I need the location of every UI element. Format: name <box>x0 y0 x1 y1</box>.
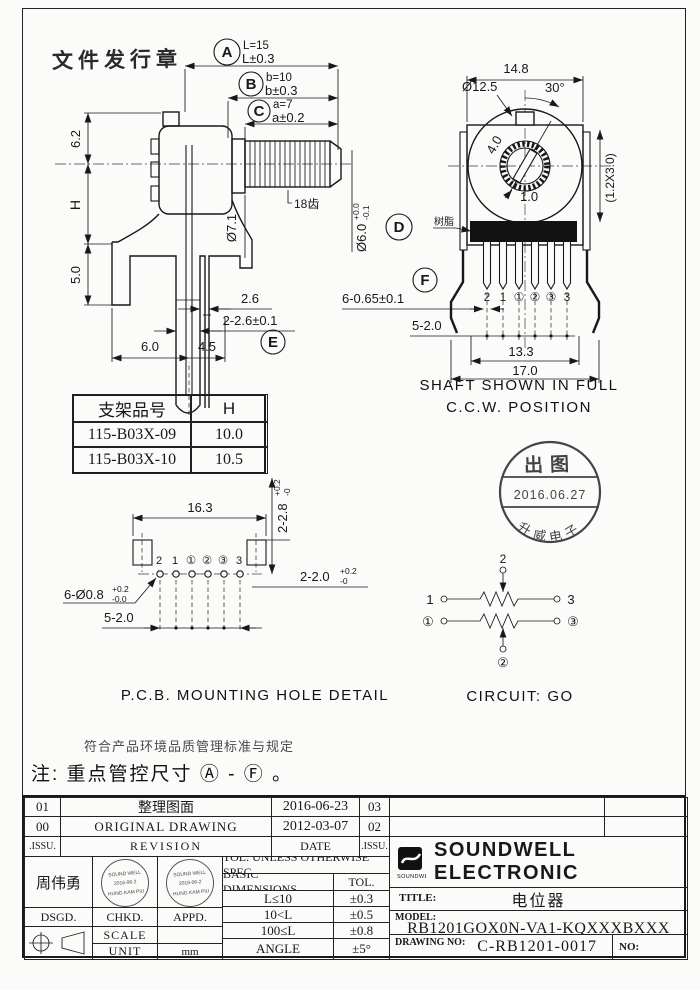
drawing-no-value: C-RB1201-0017 <box>477 938 597 956</box>
bracket-col-part: 支架品号 <box>72 394 192 423</box>
callout-F: F <box>420 272 429 289</box>
designer-name: 周伟勇 <box>24 856 93 908</box>
dim-30deg: 30° <box>545 80 565 95</box>
svg-text:2-2.8: 2-2.8 <box>275 503 290 533</box>
rev-h-date: DATE <box>271 836 360 857</box>
pcb-caption: P.C.B. MOUNTING HOLE DETAIL <box>100 687 410 704</box>
tol-val-3: ±0.8 <box>333 922 390 939</box>
dim-2-6: 2.6 <box>241 291 259 306</box>
svg-text:-0.1: -0.1 <box>361 205 371 220</box>
title-block: 01 整理图面 2016-06-23 03 00 ORIGINAL DRAWIN… <box>22 795 686 958</box>
note-key-dimensions: 注: 重点管控尺寸 Ⓐ - Ⓕ 。 <box>31 759 293 786</box>
terminal-2-label: 2 <box>500 552 507 566</box>
tol-col-tol: TOL. <box>333 873 390 891</box>
rev-empty-4 <box>604 816 688 837</box>
rev-issu-2: 00 <box>24 816 61 837</box>
svg-text:+0.2: +0.2 <box>272 479 282 496</box>
svg-text:SOUNDWELL: SOUNDWELL <box>397 874 426 879</box>
drawing-sheet: 文件发行章 <box>0 0 700 990</box>
bracket-h-1: 10.0 <box>190 421 268 448</box>
terminal-1-label: 1 <box>426 592 433 607</box>
dim-H: H <box>67 200 83 210</box>
dim-C-tol: a±0.2 <box>272 110 304 125</box>
pin-label: 1 <box>500 292 506 304</box>
dim-14-8: 14.8 <box>503 61 528 76</box>
callout-B: B <box>246 76 257 93</box>
dim-hole-dia: 6-Ø0.8 <box>64 587 104 602</box>
dim-5-0: 5.0 <box>68 266 83 284</box>
title-value: 电位器 <box>511 887 565 911</box>
dim-6-2: 6.2 <box>68 130 83 148</box>
circuit-caption: CIRCUIT: GO <box>440 688 600 705</box>
model-value: RB1201GOX0N-VA1-KQXXXBXXX <box>390 920 687 935</box>
pin-label: 3 <box>564 292 570 304</box>
front-view: 30° Ø12.5 14.8 4.0 1.0 (1.2X3.0) 树脂 <box>342 61 617 383</box>
chkd-label: CHKD. <box>92 907 158 927</box>
tol-range-1: L≤10 <box>222 890 334 907</box>
tol-header: TOL. UNLESS OTHERWISE SPEC. <box>222 856 390 874</box>
dim-B-tol: b±0.3 <box>265 83 297 98</box>
third-angle-projection-icon <box>28 929 90 957</box>
pin-label: ② <box>530 290 541 304</box>
dsgd-label: DSGD. <box>24 907 93 927</box>
stamp-bottom-text: 升威电子 <box>515 519 585 545</box>
dim-4-5: 4.5 <box>198 339 216 354</box>
svg-text:-0: -0 <box>282 488 292 496</box>
rev-date-1: 2016-06-23 <box>271 797 360 817</box>
callout-A: A <box>222 44 233 61</box>
bracket-h-2: 10.5 <box>190 446 268 474</box>
tol-col-dims: BASIC DIMENSIONS <box>222 873 334 891</box>
soundwell-logo: SOUNDWELL <box>396 845 426 879</box>
pcb-holes <box>157 571 243 631</box>
drawing-no-label: DRAWING NO: <box>390 935 465 948</box>
terminal-2c-label: ② <box>497 655 509 670</box>
scale-value <box>157 926 223 944</box>
rev-empty-3 <box>389 816 605 837</box>
company-name: SOUNDWELL ELECTRONIC <box>434 839 687 885</box>
terminal-1c-label: ① <box>422 614 434 629</box>
tol-range-4: ANGLE <box>222 938 334 960</box>
drawing-no-row: DRAWING NO: C-RB1201-0017 <box>389 934 613 960</box>
dim-dia-7-1: Ø7.1 <box>224 214 239 242</box>
hole-label: 1 <box>172 555 178 567</box>
front-pins <box>484 242 571 340</box>
stamp-date: 2016.06.27 <box>514 488 587 502</box>
dim-1-0: 1.0 <box>520 189 538 204</box>
circuit-diagram: 2 1 3 ① ③ ② <box>422 552 579 670</box>
dim-6-0-65: 6-0.65±0.1 <box>342 291 404 306</box>
hole-label: ② <box>202 555 212 567</box>
pin-label: ① <box>514 290 525 304</box>
svg-text:+0.2: +0.2 <box>112 584 129 594</box>
side-view: 6.2 H 5.0 2.6 2-2.6±0.1 6.0 4.5 E Ø7.1 <box>55 39 412 415</box>
dim-pcb-pitch: 5-2.0 <box>104 610 134 625</box>
resin-label: 树脂 <box>434 215 454 228</box>
pin-label: 2 <box>484 292 490 304</box>
scale-label: SCALE <box>92 926 158 944</box>
dim-4-0: 4.0 <box>483 133 505 156</box>
dim-13-3: 13.3 <box>508 344 533 359</box>
release-stamp: 出图 2016.06.27 升威电子 <box>500 442 600 545</box>
svg-text:-0.0: -0.0 <box>112 594 127 604</box>
dim-1-2x3-0: (1.2X3.0) <box>603 153 617 202</box>
bracket-table: 支架品号 H 115-B03X-09 10.0 115-B03X-10 10.5 <box>72 394 266 474</box>
title-row: TITLE: 电位器 <box>389 887 688 911</box>
rev-h-issu: .ISSU. <box>24 836 61 857</box>
tol-val-4: ±5° <box>333 938 390 960</box>
rev-h-num: .ISSU. <box>359 836 390 857</box>
bracket-part-2: 115-B03X-10 <box>72 446 192 474</box>
tol-val-1: ±0.3 <box>333 890 390 907</box>
dim-dia-6-0: Ø6.0 +0.0 -0.1 <box>351 203 371 252</box>
dim-2-2-6: 2-2.6±0.1 <box>223 313 278 328</box>
callout-E: E <box>268 334 278 351</box>
stamp-top-text: 出图 <box>524 452 577 477</box>
company-row: SOUNDWELL SOUNDWELL ELECTRONIC <box>389 836 688 888</box>
callout-D: D <box>394 219 405 236</box>
appd-label: APPD. <box>157 907 223 927</box>
tol-val-2: ±0.5 <box>333 906 390 923</box>
svg-text:-0: -0 <box>340 576 348 586</box>
dim-16-3: 16.3 <box>187 500 212 515</box>
resin-band <box>470 221 577 242</box>
terminal-3-label: 3 <box>567 592 574 607</box>
dim-17-0: 17.0 <box>512 363 537 378</box>
pcb-detail: 16.3 2 1 ① ② ③ 3 6-Ø0.8 +0.2 -0.0 <box>63 478 368 631</box>
rev-issu-1: 01 <box>24 797 61 817</box>
dim-2-2-0: 2-2.0 <box>300 569 330 584</box>
bracket-part-1: 115-B03X-09 <box>72 421 192 448</box>
dim-A-tol: L±0.3 <box>242 51 274 66</box>
rev-h-desc: REVISION <box>60 836 272 857</box>
no-cell: NO: <box>612 934 688 960</box>
hole-label: ① <box>186 555 196 567</box>
projection-symbol-cell <box>24 926 93 960</box>
note-environment: 符合产品环境品质管理标准与规定 <box>84 736 294 755</box>
dim-pitch: 5-2.0 <box>412 318 442 333</box>
rev-num-2: 02 <box>359 816 390 837</box>
svg-text:+0.0: +0.0 <box>351 203 361 220</box>
svg-text:+0.2: +0.2 <box>340 566 357 576</box>
rev-empty-1 <box>389 797 605 817</box>
rev-desc-1: 整理图面 <box>60 797 272 817</box>
bracket-col-h: H <box>190 394 268 423</box>
dim-6-0: 6.0 <box>141 339 159 354</box>
rev-date-2: 2012-03-07 <box>271 816 360 837</box>
hole-label: 3 <box>236 555 242 567</box>
rev-empty-2 <box>604 797 688 817</box>
svg-text:Ø6.0: Ø6.0 <box>354 224 369 252</box>
dim-18-teeth: 18齿 <box>294 197 319 211</box>
callout-C: C <box>254 103 265 120</box>
title-label: TITLE: <box>395 892 436 904</box>
hole-label: ③ <box>218 555 228 567</box>
rev-num-1: 03 <box>359 797 390 817</box>
tol-range-3: 100≤L <box>222 922 334 939</box>
model-row: MODEL: RB1201GOX0N-VA1-KQXXXBXXX <box>389 910 688 935</box>
unit-value: mm <box>157 943 223 960</box>
front-view-caption-1: SHAFT SHOWN IN FULL <box>408 377 630 394</box>
tol-range-2: 10<L <box>222 906 334 923</box>
hole-label: 2 <box>156 555 162 567</box>
rev-desc-2: ORIGINAL DRAWING <box>60 816 272 837</box>
dim-2-2-8: 2-2.8 +0.2 -0 <box>272 479 292 533</box>
unit-label: UNIT <box>92 943 158 960</box>
terminal-3c-label: ③ <box>567 614 579 629</box>
pin-label: ③ <box>546 290 557 304</box>
front-view-caption-2: C.C.W. POSITION <box>408 399 630 416</box>
